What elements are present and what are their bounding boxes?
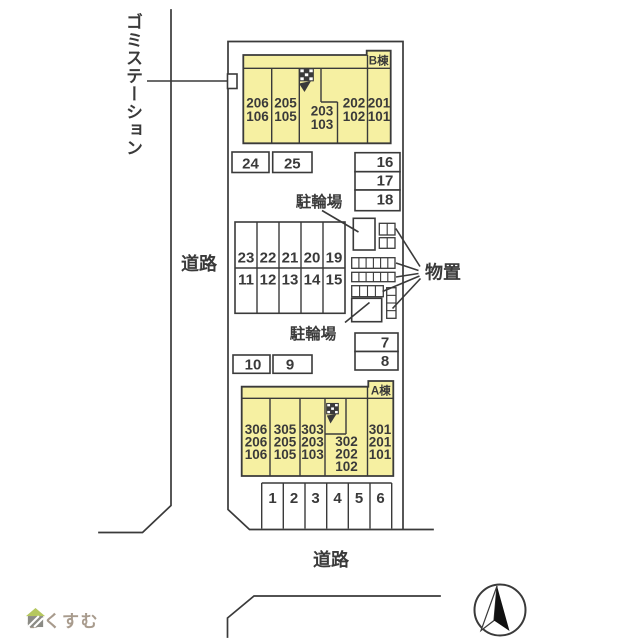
storage-box-small-1 — [379, 223, 395, 235]
parking-space-24: 24 — [242, 156, 259, 173]
bike-parking-top-box — [353, 218, 375, 250]
bike-parking-bottom-box — [352, 298, 382, 321]
parking-space-18: 18 — [377, 192, 394, 209]
garbage-station-box — [228, 74, 238, 89]
storage-row-2 — [352, 272, 395, 281]
parking-space-16: 16 — [377, 154, 394, 171]
unit-label: 106 — [246, 109, 269, 124]
parking-space-14: 14 — [304, 272, 321, 289]
storage-row-3 — [352, 286, 384, 297]
building-b-name: B棟 — [369, 54, 389, 68]
storage-label: 物置 — [425, 262, 461, 283]
garbage-station-label: ゴミステーション — [124, 13, 141, 157]
storage-row-1 — [352, 258, 395, 269]
unit-label: 101 — [368, 109, 391, 124]
parking-space-4: 4 — [333, 490, 342, 507]
watermark-logo: らくすむ — [25, 607, 99, 632]
parking-space-8: 8 — [381, 353, 389, 370]
parking-space-5: 5 — [355, 490, 363, 507]
parking-space-23: 23 — [238, 250, 255, 267]
unit-label: 103 — [311, 117, 334, 132]
parking-space-1: 1 — [268, 490, 276, 507]
site-plan-drawing: B棟 206 106 205 105 203 103 202 102 201 1… — [0, 0, 640, 640]
road-bottom-line — [228, 596, 441, 637]
parking-space-20: 20 — [304, 250, 321, 267]
parking-pair-top: 24 25 — [232, 152, 312, 173]
bike-parking-top-label: 駐輪場 — [296, 192, 343, 211]
parking-space-15: 15 — [326, 272, 343, 289]
unit-label: 102 — [343, 109, 366, 124]
parking-space-13: 13 — [282, 272, 299, 289]
house-icon — [25, 607, 46, 628]
garbage-station-marker — [147, 74, 237, 89]
storage-box-small-2 — [379, 238, 395, 249]
parking-space-17: 17 — [377, 173, 394, 190]
storage-column-vertical — [387, 288, 396, 319]
bike-parking-bottom-label: 駐輪場 — [290, 324, 337, 343]
unit-label: 101 — [369, 447, 392, 462]
parking-right-top: 16 17 18 — [355, 153, 400, 211]
parking-right-mid: 7 8 — [355, 333, 398, 370]
parking-grid: 23 22 21 20 19 11 12 13 14 15 — [235, 222, 345, 313]
parking-space-3: 3 — [311, 490, 319, 507]
unit-label: 105 — [274, 447, 297, 462]
parking-space-9: 9 — [286, 357, 294, 374]
building-a-name: A棟 — [371, 384, 391, 398]
parking-space-25: 25 — [284, 156, 301, 173]
north-arrow-compass — [475, 585, 526, 636]
parking-bottom-row: 1 2 3 4 5 6 — [262, 483, 392, 529]
parking-space-12: 12 — [260, 272, 277, 289]
building-a: A棟 306 206 106 305 205 105 303 203 103 3… — [242, 381, 394, 476]
parking-space-11: 11 — [238, 272, 254, 289]
road-bottom-label: 道路 — [313, 549, 350, 570]
parking-space-10: 10 — [245, 357, 262, 374]
unit-label: 102 — [335, 459, 358, 474]
parking-space-19: 19 — [326, 250, 343, 267]
parking-space-2: 2 — [290, 490, 298, 507]
unit-label: 103 — [301, 447, 324, 462]
parking-pair-mid: 10 9 — [233, 355, 312, 374]
unit-label: 105 — [274, 109, 297, 124]
parking-space-7: 7 — [381, 335, 389, 352]
building-b: B棟 206 106 205 105 203 103 202 102 201 1… — [243, 51, 390, 144]
unit-label: 106 — [245, 447, 268, 462]
parking-space-21: 21 — [282, 250, 299, 267]
parking-space-22: 22 — [260, 250, 277, 267]
site-plan: B棟 206 106 205 105 203 103 202 102 201 1… — [0, 0, 640, 640]
parking-space-6: 6 — [376, 490, 384, 507]
road-left-label: 道路 — [181, 253, 218, 274]
